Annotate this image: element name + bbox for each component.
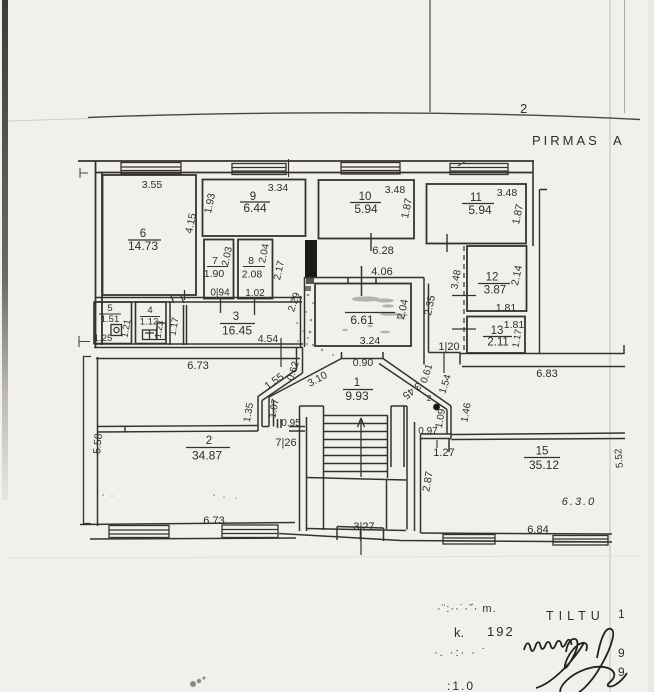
svg-text:9: 9 (618, 646, 625, 660)
svg-text:0.90: 0.90 (353, 357, 374, 369)
svg-text:2: 2 (520, 101, 527, 116)
svg-text:5.58: 5.58 (91, 433, 105, 455)
svg-text:3.24: 3.24 (360, 335, 381, 347)
svg-text:7|26: 7|26 (275, 437, 296, 449)
svg-text:3.87: 3.87 (484, 285, 506, 297)
svg-text:0.97: 0.97 (418, 426, 438, 437)
svg-text:6.83: 6.83 (536, 368, 557, 380)
svg-text:3.34: 3.34 (268, 182, 289, 194)
svg-text:2: 2 (427, 393, 432, 403)
svg-text:6.73: 6.73 (203, 515, 224, 527)
svg-text:15: 15 (536, 446, 549, 458)
svg-text:k.: k. (454, 625, 464, 640)
svg-text:6.84: 6.84 (527, 524, 548, 536)
svg-text:TILTU: TILTU (546, 609, 605, 623)
svg-text:1.27: 1.27 (433, 447, 454, 459)
svg-text:6.28: 6.28 (372, 245, 393, 257)
svg-text:12: 12 (486, 272, 499, 284)
svg-text:6.44: 6.44 (243, 201, 267, 215)
svg-text:0.95: 0.95 (281, 418, 301, 429)
svg-text:13: 13 (491, 325, 504, 337)
svg-text:16.45: 16.45 (222, 324, 252, 338)
svg-text::1.0: :1.0 (447, 679, 475, 692)
svg-text:·. ·:· · ˙: ·. ·:· · ˙ (434, 647, 488, 659)
svg-text:9.93: 9.93 (345, 389, 369, 403)
svg-text:5.94: 5.94 (468, 203, 492, 217)
svg-text:1|20: 1|20 (438, 341, 459, 353)
svg-text:6.61: 6.61 (350, 313, 374, 327)
svg-text:4: 4 (147, 305, 152, 316)
svg-text:6.73: 6.73 (187, 360, 208, 372)
svg-text:PIRMAS: PIRMAS (532, 133, 600, 148)
svg-text:3.48: 3.48 (385, 184, 406, 196)
svg-text:7: 7 (212, 255, 218, 267)
svg-text:8: 8 (248, 255, 254, 267)
svg-text:1: 1 (618, 607, 625, 621)
svg-text:9: 9 (618, 665, 625, 679)
svg-text:3: 3 (233, 311, 239, 323)
svg-text:1.25: 1.25 (94, 333, 113, 344)
svg-text:3.55: 3.55 (142, 179, 163, 191)
svg-text:3|27: 3|27 (353, 521, 374, 533)
svg-text:A: A (613, 133, 622, 148)
svg-text:192: 192 (487, 624, 515, 639)
svg-text:·¨:··˙·˝· m.: ·¨:··˙·˝· m. (437, 603, 497, 615)
svg-text:5.52: 5.52 (613, 448, 626, 469)
svg-text:1.90: 1.90 (204, 268, 225, 280)
svg-text:1: 1 (354, 377, 360, 389)
svg-text:2.08: 2.08 (242, 269, 263, 281)
svg-text:5.94: 5.94 (354, 202, 378, 216)
svg-text:4.06: 4.06 (371, 266, 392, 278)
svg-text:1.81: 1.81 (496, 302, 517, 314)
svg-text:1.51: 1.51 (101, 314, 120, 325)
svg-text:3.48: 3.48 (497, 187, 518, 199)
svg-text:4.54: 4.54 (258, 333, 279, 345)
svg-text:5: 5 (107, 303, 112, 314)
svg-text:14.73: 14.73 (128, 239, 158, 253)
svg-text:35.12: 35.12 (529, 458, 559, 472)
svg-text:6.3.0: 6.3.0 (562, 496, 596, 508)
svg-text:2: 2 (206, 435, 212, 447)
svg-text:34.87: 34.87 (192, 449, 222, 463)
svg-text:2.11: 2.11 (487, 337, 509, 349)
